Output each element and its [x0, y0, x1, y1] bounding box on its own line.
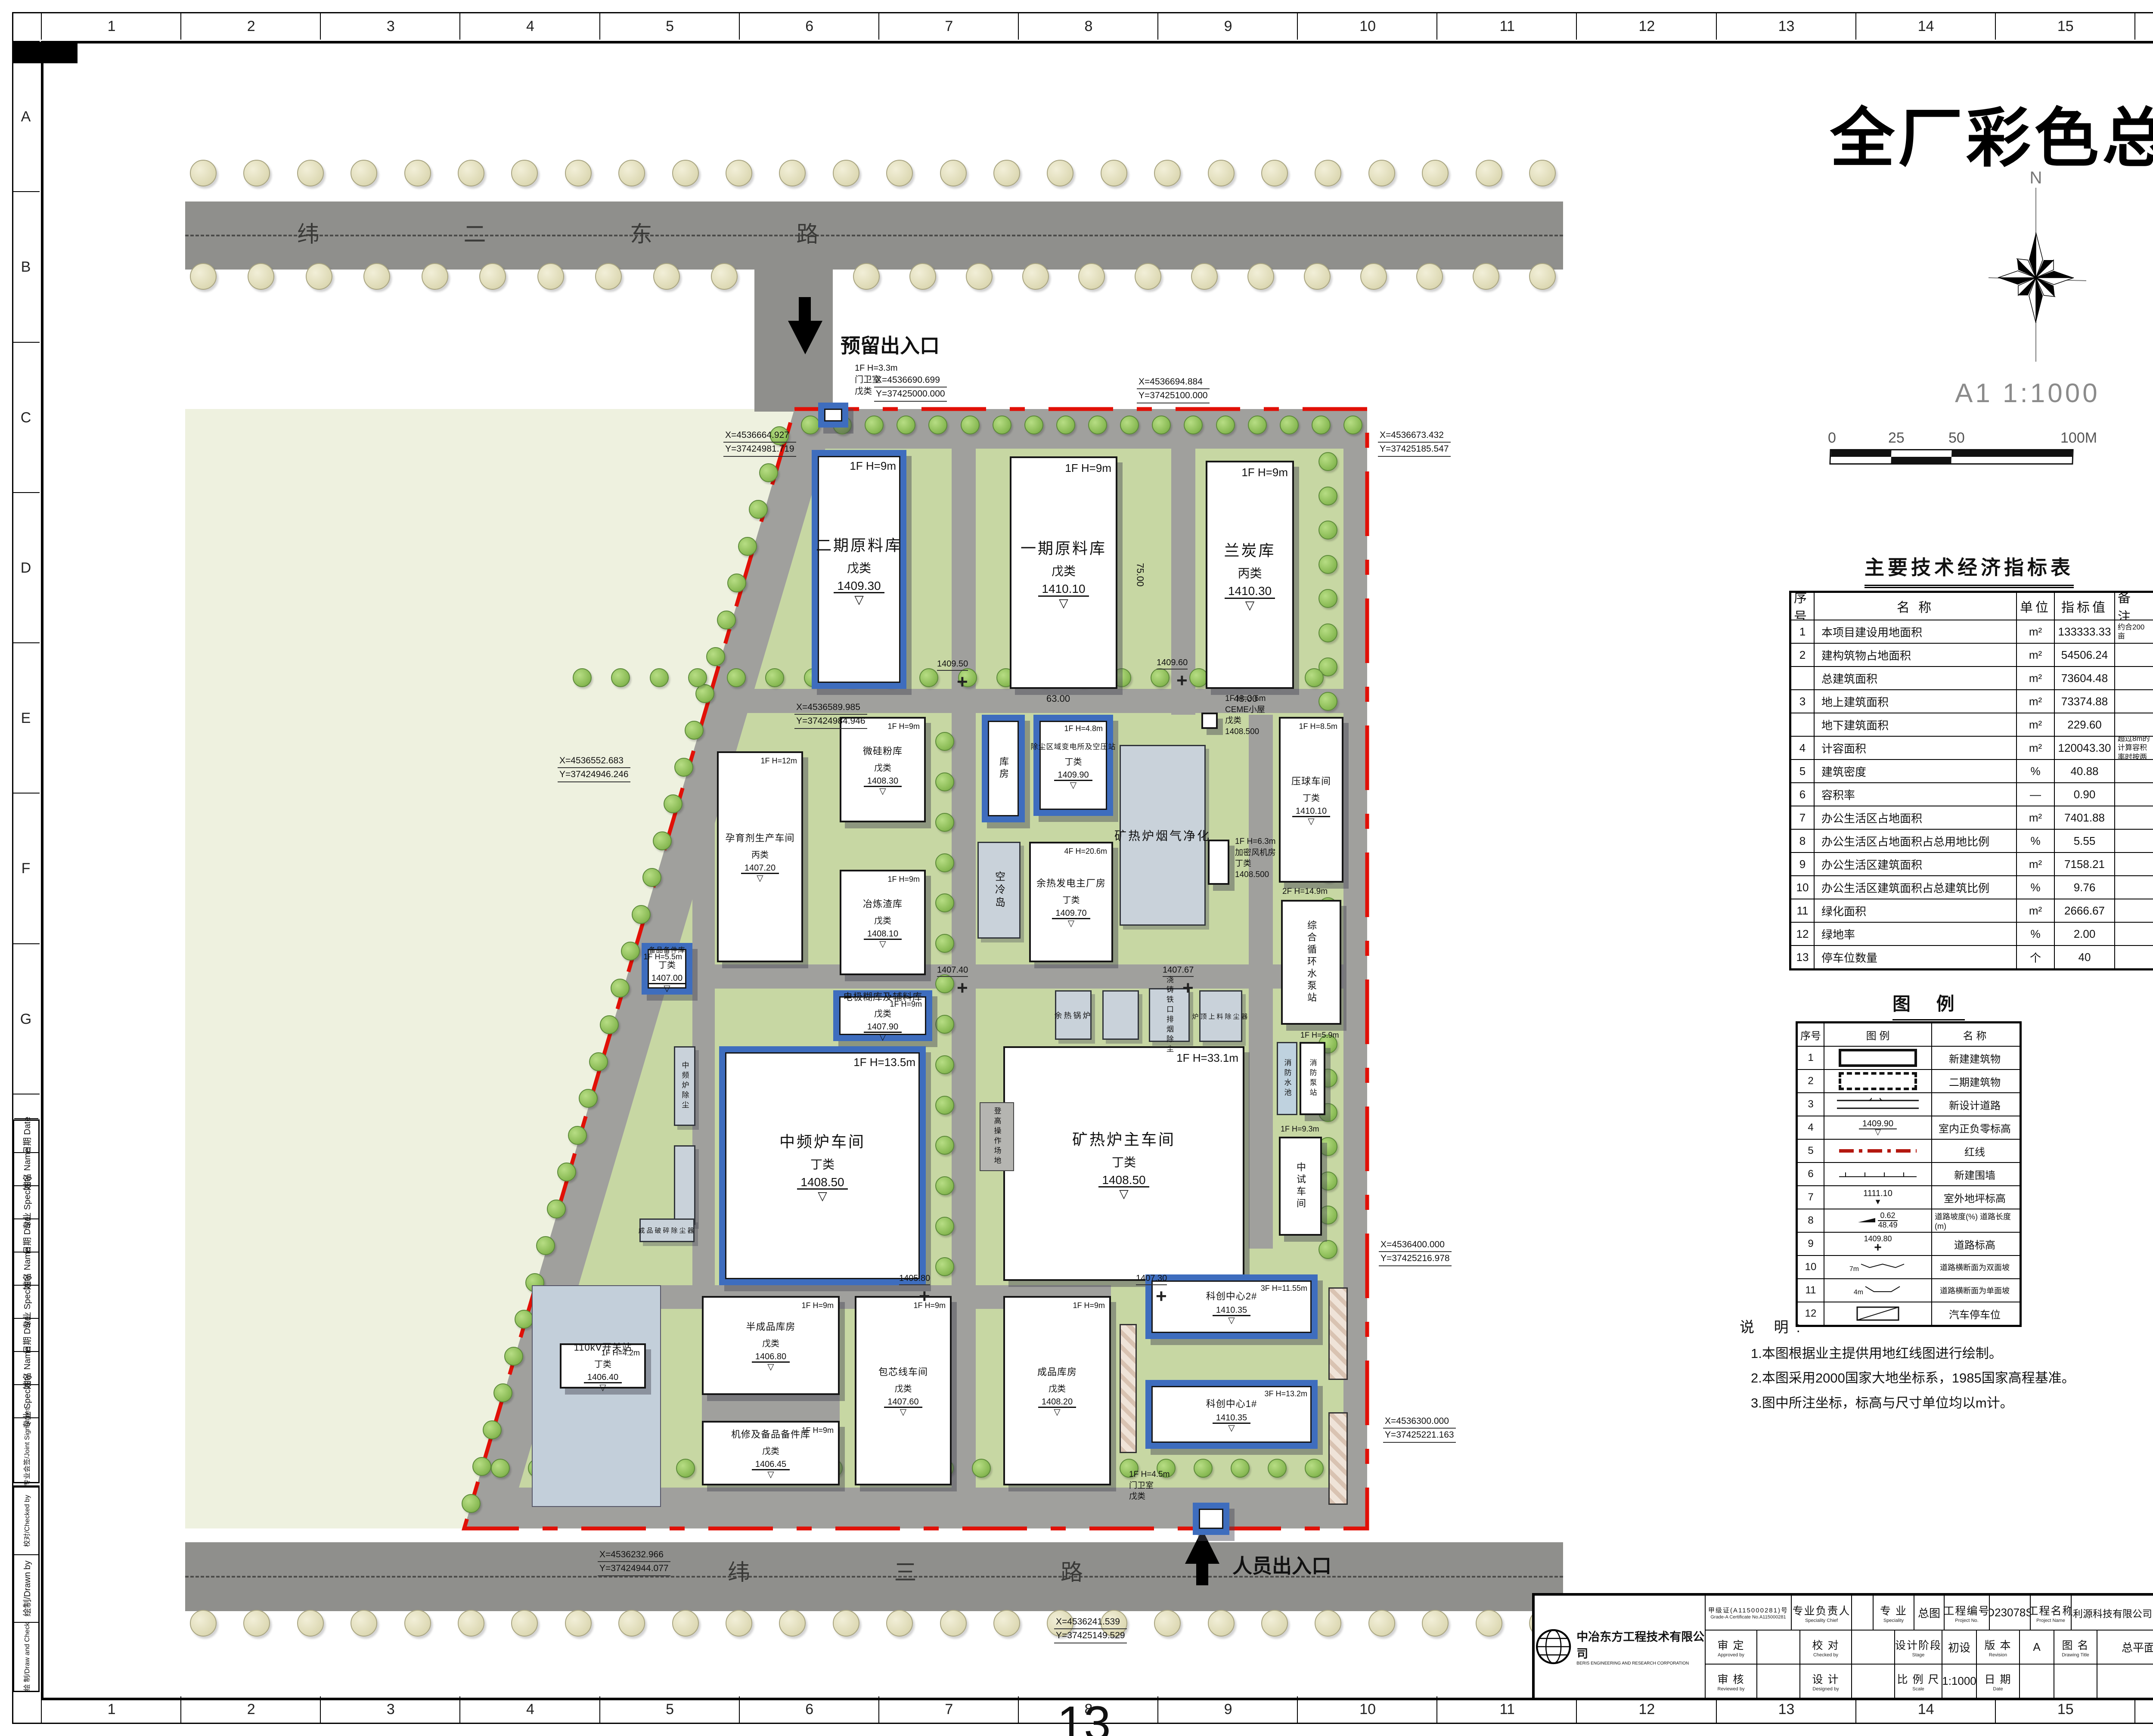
table-cell: 73374.88	[2054, 690, 2114, 713]
building-elevation: 1410.10▽	[1292, 807, 1330, 826]
draw-check-strip: 绘 制/Draw and Check绘制/Drawn by校对/Checked …	[13, 1485, 40, 1692]
title-block-cell	[1851, 1630, 1894, 1664]
tree-icon	[565, 160, 592, 186]
legend-symbol-slope: 0.6248.49	[1824, 1209, 1931, 1232]
plan-label: 纬 二 东 路	[297, 220, 887, 250]
tree-icon	[1416, 263, 1443, 290]
tree-icon	[511, 1610, 538, 1637]
tree-icon	[642, 868, 661, 887]
tree-icon	[1047, 160, 1073, 186]
plan-label: 人员出入口	[1232, 1553, 1331, 1579]
legend-name: 室内正负零标高	[1931, 1116, 2017, 1139]
plan-label: 1F H=4.5m 门卫室 戊类	[1129, 1469, 1170, 1502]
building-elevation: 1410.30▽	[1225, 585, 1275, 611]
legend-row: 107m道路横断面为双面坡	[1798, 1255, 2020, 1278]
building-label: 矿热炉烟气净化	[1121, 746, 1204, 924]
title-block-cell: 设计阶段Stage	[1894, 1630, 1942, 1664]
title-block: 中冶东方工程技术有限公司 BERIS ENGINEERING AND RESEA…	[1532, 1593, 2153, 1700]
drawing-sheet: 1122334455667788991010111112121313141415…	[0, 0, 2153, 1736]
building-label: 中频炉车间丁类1408.50▽	[725, 1052, 920, 1279]
coordinate-callout: X=4536673.432Y=37425185.547	[1378, 429, 1451, 457]
building-label: 炉顶上料除尘器	[1201, 992, 1241, 1041]
tree-icon	[1318, 487, 1337, 505]
table-cell: 2.00	[2054, 923, 2114, 945]
legend-no: 11	[1798, 1279, 1824, 1302]
building-elevation: 1407.00▽	[648, 974, 686, 993]
building-label: 机修及备品备件库戊类1406.45▽	[704, 1423, 838, 1484]
tree-icon	[1151, 668, 1170, 687]
building-class: 丙类	[751, 848, 769, 860]
tree-icon	[1318, 1240, 1337, 1259]
building-name: 炉顶上料除尘器	[1192, 1012, 1250, 1021]
elevation-triangle-icon: ▽	[1308, 817, 1314, 826]
title-block-cell	[1851, 1596, 1873, 1630]
scalebar-seg	[1830, 457, 1891, 463]
title-block-cell	[2054, 1664, 2097, 1698]
elevation-triangle-icon: ▽	[1228, 1316, 1235, 1325]
tree-icon	[565, 1610, 592, 1637]
tree-icon	[935, 1217, 954, 1236]
tree-icon	[1315, 1610, 1341, 1637]
coordinate-callout: X=4536552.683Y=37424946.246	[558, 754, 630, 782]
table-cell: 约合200亩	[2114, 620, 2153, 643]
road-elevation-cross-icon: +	[1156, 1286, 1167, 1307]
tree-icon	[993, 1610, 1020, 1637]
table-cell: 8	[1791, 830, 1814, 852]
building-name: 兰炭库	[1224, 538, 1275, 561]
elevation-triangle-icon: ▽	[1070, 781, 1076, 790]
building-label: 消防泵站	[1301, 1044, 1324, 1113]
legend-name: 新设计道路	[1931, 1093, 2017, 1116]
table-cell: 绿化面积	[1814, 899, 2016, 922]
building-name: 成品库房	[1037, 1364, 1077, 1378]
table-cell: 7158.21	[2054, 853, 2114, 875]
tree-icon	[935, 1176, 954, 1195]
title-block-cell	[1756, 1630, 1799, 1664]
page-number: 13	[1057, 1696, 1111, 1736]
elevation-triangle-icon: ▽	[879, 787, 886, 796]
table-cell: 133333.33	[2054, 620, 2114, 643]
company-globe-icon	[1535, 1626, 1572, 1667]
table-cell: 单层层高超过8m的 计算容积率时按两倍计算	[2114, 737, 2153, 759]
building-elevation: 1407.90▽	[864, 1023, 902, 1042]
building-elevation: 1408.50▽	[1098, 1174, 1149, 1200]
indicator-table-title: 主要技术经济指标表	[1864, 552, 2074, 588]
title-block-cell: A	[2019, 1630, 2054, 1664]
elevation-value: 1408.10	[864, 930, 902, 940]
building-科创中心1#: 3F H=13.2m科创中心1#1410.35▽	[1145, 1380, 1318, 1449]
table-cell: m²	[2016, 853, 2054, 875]
title-block-cell: 1:1000	[1942, 1664, 1976, 1698]
table-cell: 容积率	[1814, 783, 2016, 806]
building-class: 戊类	[874, 761, 891, 773]
tree-icon	[653, 831, 672, 850]
building-elevation: 1408.10▽	[864, 930, 902, 949]
tree-icon	[833, 160, 859, 186]
tree-icon	[306, 263, 332, 290]
legend-row: 3新设计道路	[1798, 1092, 2020, 1116]
tree-icon	[940, 160, 967, 186]
elevation-triangle-icon: ▽	[1068, 919, 1074, 928]
elevation-value: 1407.20	[741, 864, 779, 874]
building-name: 中频炉车间	[779, 1129, 866, 1152]
building-登高操作场地: 登高操作场地	[980, 1102, 1014, 1171]
legend-no: 9	[1798, 1233, 1824, 1255]
table-cell: m²	[2016, 713, 2054, 736]
title-block-cell: 校 对Checked by	[1799, 1630, 1851, 1664]
tree-icon	[243, 160, 270, 186]
tree-icon	[935, 1055, 954, 1074]
building-二期原料库: 1F H=9m二期原料库戊类1409.30▽	[812, 450, 906, 689]
building-name: 微硅粉库	[863, 744, 903, 757]
tree-icon	[1318, 623, 1337, 642]
tree-icon	[674, 758, 693, 777]
table-cell: m²	[2016, 620, 2054, 643]
tree-icon	[248, 263, 274, 290]
legend-symbol-road	[1824, 1093, 1931, 1116]
building-110kV开关站: 1F H=4.2m110kV开关站丁类1406.40▽	[560, 1343, 646, 1389]
building-微硅粉库: 1F H=9m微硅粉库戊类1408.30▽	[840, 717, 926, 822]
tree-icon	[190, 160, 217, 186]
tree-icon	[833, 1610, 859, 1637]
legend-no: 4	[1798, 1116, 1824, 1139]
building	[1201, 713, 1218, 729]
table-row: 2建构筑物占地面积m²54506.24	[1791, 643, 2153, 666]
building-label: 除尘区域变电所及空压站丁类1409.90▽	[1039, 721, 1107, 810]
tree-icon	[1422, 1610, 1449, 1637]
building-label: 中频炉除尘	[675, 1048, 694, 1125]
signature-cell: 姓名 Name	[14, 1252, 38, 1285]
table-cell: 13	[1791, 946, 1814, 968]
building-class: 丁类	[1063, 893, 1080, 905]
table-cell	[2114, 760, 2153, 782]
coordinate-callout: X=4536690.699Y=37425000.000	[874, 374, 947, 402]
title-block-cell: 审 定Approved by	[1705, 1630, 1756, 1664]
elevation-value: 1406.80	[752, 1352, 790, 1363]
table-cell	[1791, 713, 1814, 736]
building-name: 浇铸铁口排烟除尘	[1164, 976, 1175, 1055]
building	[818, 403, 848, 428]
tree-icon	[706, 647, 725, 666]
title-block-cell	[1851, 1664, 1894, 1698]
building-elevation: 1407.60▽	[884, 1398, 922, 1417]
tree-icon	[779, 1610, 806, 1637]
legend-table: 序号图 例名 称1新建建筑物2二期建筑物3新设计道路41409.90▽室内正负零…	[1796, 1021, 2022, 1327]
building-class: 丁类	[1303, 791, 1320, 803]
tree-icon	[1261, 1610, 1288, 1637]
table-cell: 10	[1791, 876, 1814, 899]
elevation-triangle-icon: ▽	[879, 940, 886, 949]
building-包芯线车间: 1F H=9m包芯线车间戊类1407.60▽	[855, 1296, 952, 1485]
table-cell: 73604.48	[2054, 667, 2114, 689]
building-elevation: 1410.35▽	[1213, 1414, 1250, 1433]
legend-no: 2	[1798, 1070, 1824, 1092]
title-block-cell: 包头圣泉科利源科技有限公司多元稀土合金新材料项目	[2071, 1596, 2153, 1630]
table-row: 5建筑密度%40.88	[1791, 759, 2153, 782]
tree-icon	[1305, 1459, 1324, 1478]
tree-icon	[676, 1459, 695, 1478]
tree-icon	[579, 1089, 598, 1108]
tree-icon	[297, 160, 324, 186]
elevation-triangle-icon: ▽	[1228, 1424, 1235, 1433]
table-cell: 9	[1791, 853, 1814, 875]
legend-symbol-sec1: 4m	[1824, 1279, 1931, 1302]
table-cell: 办公生活区占地面积	[1814, 806, 2016, 829]
building-name: 包芯线车间	[878, 1364, 928, 1378]
legend-name: 新建建筑物	[1931, 1047, 2017, 1069]
elevation-value: 1408.50	[797, 1176, 847, 1190]
building-name: 冶炼渣库	[863, 896, 903, 910]
building-矿热炉烟气净化: 矿热炉烟气净化	[1120, 745, 1206, 926]
building-label: 冶炼渣库戊类1408.10▽	[841, 871, 924, 973]
tree-icon	[595, 263, 622, 290]
table-cell	[2114, 876, 2153, 899]
title-block-cell: 工程编号Project No.	[1944, 1596, 1989, 1630]
building-name: 消防水池	[1282, 1059, 1293, 1098]
tree-icon	[935, 1257, 954, 1276]
building-label: 电极糊库及辅料库戊类1407.90▽	[839, 996, 926, 1035]
legend-header-cell: 图 例	[1824, 1023, 1931, 1046]
table-header-cell: 指标值	[2054, 593, 2114, 620]
tree-icon	[618, 160, 645, 186]
legend-row: 80.6248.49道路坡度(%) 道路长度(m)	[1798, 1209, 2020, 1232]
building-elevation: 1409.30▽	[834, 580, 884, 606]
legend-symbol-rect_solid	[1824, 1047, 1931, 1069]
signature-cell: 绘 制/Draw and Check	[14, 1622, 38, 1691]
table-cell	[2114, 946, 2153, 968]
elevation-value: 1408.50	[1098, 1174, 1149, 1187]
plan-label: 1F H=5.9m	[1300, 1030, 1339, 1040]
elevation-value: 1408.20	[1038, 1398, 1076, 1408]
tree-icon	[1318, 589, 1337, 608]
tree-icon	[711, 263, 738, 290]
legend-row: 71111.10▼室外地坪标高	[1798, 1185, 2020, 1209]
tree-icon	[190, 263, 217, 290]
tree-icon	[1216, 415, 1235, 434]
building-矿热炉主车间: 1F H=33.1m矿热炉主车间丁类1408.50▽	[1003, 1046, 1244, 1281]
building-elevation: 1409.90▽	[1054, 771, 1092, 790]
scalebar-label: 100M	[2060, 428, 2097, 448]
title-block-cell: 比 例 尺Scale	[1894, 1664, 1942, 1698]
table-cell: m²	[2016, 690, 2054, 713]
table-cell: 4	[1791, 737, 1814, 759]
building-label: 二期原料库戊类1409.30▽	[818, 456, 900, 683]
table-header-row: 序号名 称单位指标值备 注	[1791, 593, 2153, 620]
tree-icon	[1024, 415, 1043, 434]
tree-icon	[1368, 160, 1395, 186]
tree-icon	[363, 263, 390, 290]
tree-icon	[1078, 263, 1105, 290]
building-余热锅炉: 余热锅炉	[1055, 990, 1092, 1040]
company-name-cn: 中冶东方工程技术有限公司	[1576, 1627, 1705, 1661]
elevation-triangle-icon: ▽	[1059, 597, 1068, 609]
tree-icon	[573, 668, 592, 687]
building-label: 余热锅炉	[1056, 992, 1090, 1038]
table-cell: 地上建筑面积	[1814, 690, 2016, 713]
tree-icon	[919, 668, 938, 687]
building-name: 一期原料库	[1021, 536, 1107, 558]
coordinate-callout: X=4536241.539Y=37425149.529	[1054, 1615, 1127, 1643]
building-name: 机修及备品备件库	[731, 1427, 810, 1441]
title-block-cell: 专 业Speciality	[1873, 1596, 1914, 1630]
building-label: 科创中心1#1410.35▽	[1151, 1386, 1312, 1443]
building-label: 半成品库房戊类1406.80▽	[704, 1298, 838, 1393]
road-elevation-cross-icon: +	[1176, 670, 1188, 691]
building-中频炉车间: 1F H=13.5m中频炉车间丁类1408.50▽	[719, 1046, 926, 1285]
building-备品备件库: 1F H=5.5m备品备件库丁类1407.00▽	[642, 943, 692, 995]
coordinate-callout: X=4536664.927Y=37424981.719	[723, 429, 796, 457]
building-label: 库房	[988, 721, 1019, 816]
tree-icon	[961, 415, 980, 434]
table-row: 10办公生活区建筑面积占总建筑比例%9.76	[1791, 875, 2153, 899]
plan-label: 纬 三 路	[728, 1558, 1152, 1588]
tree-icon	[935, 813, 954, 832]
entrance-bottom-arrow-icon	[1196, 1564, 1208, 1585]
legend-name: 道路坡度(%) 道路长度(m)	[1931, 1209, 2017, 1232]
joint-signature-strip: 各专业会签/Joint Signatures专业 Specialty姓名 Nam…	[13, 1119, 40, 1483]
building-class: 戊类	[1052, 562, 1076, 579]
table-cell: 建构筑物占地面积	[1814, 644, 2016, 666]
title-block-cell: 专业负责人Speciality Chief	[1791, 1596, 1851, 1630]
tree-icon	[1476, 1610, 1502, 1637]
building-label: 余热发电主厂房丁类1409.70▽	[1031, 843, 1111, 961]
legend-name: 二期建筑物	[1931, 1070, 2017, 1092]
elevation-value: 1410.30	[1225, 585, 1275, 598]
title-block-cell: 工程名称Project Name	[2030, 1596, 2071, 1630]
notes-title: 说 明:	[1740, 1314, 2110, 1341]
format-scale: A1 1:1000	[1955, 378, 2100, 409]
coordinate-callout: X=4536400.000Y=37425216.978	[1379, 1238, 1452, 1266]
table-header-cell: 备 注	[2114, 593, 2153, 620]
elevation-triangle-icon: ▽	[757, 874, 763, 883]
tree-icon	[759, 463, 778, 482]
building	[674, 1145, 695, 1225]
building-中试车间: 中试车间	[1279, 1137, 1322, 1236]
elevation-value: 1410.35	[1213, 1306, 1250, 1316]
building-name: 成品破碎除尘器	[639, 1226, 696, 1235]
tree-icon	[853, 263, 880, 290]
tree-icon	[1152, 415, 1171, 434]
notes-item: 2.本图采用2000国家大地坐标系，1985国家高程基准。	[1740, 1366, 2110, 1390]
tree-icon	[1261, 160, 1288, 186]
table-cell: m²	[2016, 806, 2054, 829]
tree-icon	[1318, 452, 1337, 471]
legend-no: 1	[1798, 1047, 1824, 1069]
tree-icon	[190, 1610, 217, 1637]
tree-icon	[458, 1610, 484, 1637]
table-cell: 建筑密度	[1814, 760, 2016, 782]
table-cell: 5	[1791, 760, 1814, 782]
title-block-cell: D23078S	[1989, 1596, 2030, 1630]
table-cell	[2114, 830, 2153, 852]
tree-icon	[940, 1610, 967, 1637]
building-class: 丙类	[1238, 564, 1262, 581]
table-cell	[2114, 667, 2153, 689]
tree-icon	[886, 160, 913, 186]
tree-icon	[351, 1610, 377, 1637]
table-cell: 5.55	[2054, 830, 2114, 852]
tree-icon	[537, 263, 564, 290]
tree-icon	[243, 1610, 270, 1637]
building-label: 消防水池	[1278, 1043, 1296, 1114]
tree-icon	[1312, 415, 1331, 434]
tree-icon	[472, 1457, 491, 1476]
tree-icon	[1473, 263, 1499, 290]
table-cell: m²	[2016, 737, 2054, 759]
table-cell: m²	[2016, 899, 2054, 922]
building	[1120, 1324, 1137, 1453]
scalebar-label: 25	[1888, 428, 1905, 448]
building-name: 电极糊库及辅料库	[843, 989, 922, 1003]
table-row: 地下建筑面积m²229.60	[1791, 713, 2153, 736]
legend-symbol-sec2: 7m	[1824, 1256, 1931, 1278]
tree-icon	[632, 905, 651, 924]
building-孕育剂生产车间: 1F H=12m孕育剂生产车间丙类1407.20▽	[717, 751, 803, 962]
building-elevation: 1410.35▽	[1213, 1306, 1250, 1325]
building-class: 丁类	[1112, 1153, 1136, 1170]
plan-label: 预留出入口	[841, 332, 940, 359]
table-cell: 120043.30	[2054, 737, 2114, 759]
table-cell	[2114, 644, 2153, 666]
coordinate-callout: X=4536589.985Y=37424984.946	[794, 701, 867, 729]
table-cell: —	[2016, 783, 2054, 806]
building-name: 消防泵站	[1307, 1059, 1318, 1098]
table-cell: 总建筑面积	[1814, 667, 2016, 689]
tree-icon	[458, 160, 484, 186]
table-row: 11绿化面积m²2666.67	[1791, 899, 2153, 922]
building-name: 矿热炉主车间	[1072, 1127, 1176, 1150]
building-label: 110kV开关站丁类1406.40▽	[562, 1345, 644, 1387]
table-cell: 9.76	[2054, 876, 2114, 899]
tree-icon	[547, 1200, 566, 1218]
tree-icon	[1120, 415, 1139, 434]
building-class: 丁类	[658, 958, 676, 970]
table-cell	[2114, 853, 2153, 875]
building-半成品库房: 1F H=9m半成品库房戊类1406.80▽	[702, 1296, 840, 1395]
tree-icon	[1191, 263, 1218, 290]
table-cell: 229.60	[2054, 713, 2114, 736]
elevation-triangle-icon: ▽	[664, 984, 670, 993]
building-兰炭库: 1F H=9m兰炭库丙类1410.30▽	[1206, 461, 1294, 689]
legend-row: 114m道路横断面为单面坡	[1798, 1278, 2020, 1302]
tree-icon	[1343, 415, 1362, 434]
elevation-triangle-icon: ▽	[879, 1033, 886, 1042]
tree-icon	[909, 263, 936, 290]
tree-icon	[1056, 415, 1075, 434]
table-row: 9办公生活区建筑面积m²7158.21	[1791, 852, 2153, 875]
notes: 说 明:1.本图根据业主提供用地红线图进行绘制。2.本图采用2000国家大地坐标…	[1740, 1314, 2110, 1415]
tree-icon	[589, 1052, 608, 1071]
table-cell: m²	[2016, 667, 2054, 689]
table-cell: 11	[1791, 899, 1814, 922]
building-库房: 库房	[982, 715, 1025, 822]
tree-icon	[1101, 160, 1127, 186]
building-class: 戊类	[895, 1382, 912, 1394]
table-cell: %	[2016, 923, 2054, 945]
signature-cell: 日期 Date	[14, 1118, 38, 1152]
legend-header-cell: 名 称	[1931, 1023, 2017, 1046]
coordinate-callout: X=4536300.000Y=37425221.163	[1383, 1415, 1456, 1443]
building-name: 孕育剂生产车间	[725, 831, 794, 844]
legend-no: 8	[1798, 1209, 1824, 1232]
legend-symbol-redline	[1824, 1140, 1931, 1162]
building-label: 孕育剂生产车间丙类1407.20▽	[719, 753, 801, 961]
legend-row: 41409.90▽室内正负零标高	[1798, 1116, 2020, 1139]
legend-symbol-wall	[1824, 1163, 1931, 1185]
building-name: 空冷岛	[992, 871, 1007, 910]
company-name-en: BERIS ENGINEERING AND RESEARCH CORPORATI…	[1576, 1661, 1705, 1666]
title-block-cell	[2019, 1664, 2054, 1698]
